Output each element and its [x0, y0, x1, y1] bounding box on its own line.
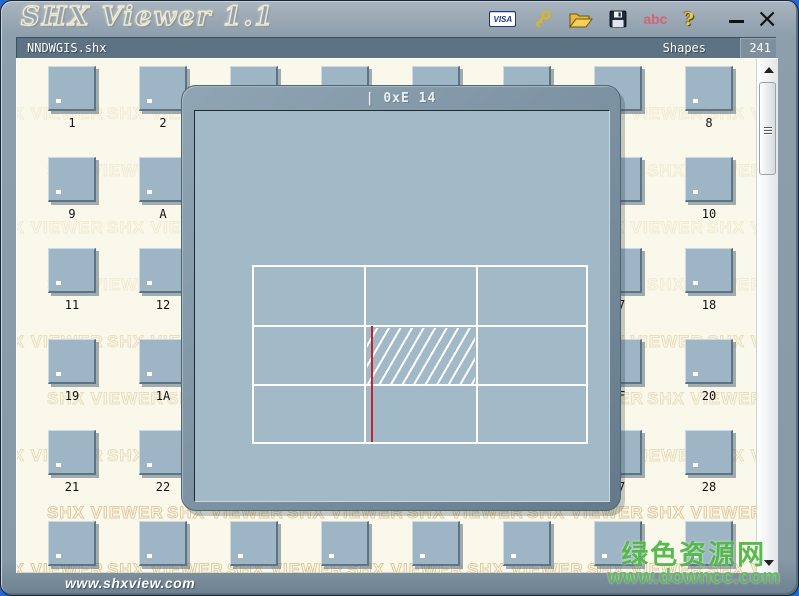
- shape-glyph-icon: [56, 372, 61, 376]
- shape-code-label: 22: [139, 480, 187, 494]
- shape-code-label: 2B: [230, 571, 278, 573]
- shape-thumbnail[interactable]: [48, 157, 96, 202]
- vendor-url: www.shxview.com: [65, 575, 195, 591]
- shape-glyph-icon: [329, 554, 334, 558]
- shape-thumbnail[interactable]: [48, 248, 96, 293]
- shape-code-label: 2F: [594, 571, 642, 573]
- grid-line: [364, 267, 366, 442]
- status-bar: NNDWGIS.shx Shapes 241: [16, 37, 776, 58]
- open-folder-icon[interactable]: [568, 10, 593, 29]
- shape-glyph-icon: [56, 281, 61, 285]
- shape-code-label: 2C: [321, 571, 369, 573]
- shape-thumbnail[interactable]: [48, 66, 96, 111]
- shape-glyph-icon: [693, 554, 698, 558]
- open-filename: NNDWGIS.shx: [27, 41, 106, 55]
- shape-thumbnail[interactable]: [685, 521, 733, 566]
- title-bar[interactable]: SHX Viewer 1.1 VISA abc ?: [1, 1, 798, 37]
- shape-glyph-icon: [693, 190, 698, 194]
- shape-glyph-icon: [56, 463, 61, 467]
- shape-glyph-icon: [693, 372, 698, 376]
- shape-thumbnail[interactable]: [48, 339, 96, 384]
- shape-thumbnail[interactable]: [139, 339, 187, 384]
- shape-code-label: 18: [685, 298, 733, 312]
- shape-glyph-icon: [238, 554, 243, 558]
- grid-line: [476, 267, 478, 442]
- shape-thumbnail[interactable]: [139, 66, 187, 111]
- grid-line: [254, 325, 586, 327]
- shape-code-label: 21: [48, 480, 96, 494]
- scroll-down-button[interactable]: [757, 556, 778, 570]
- scrollbar-thumb[interactable]: [759, 82, 776, 175]
- abc-text-icon[interactable]: abc: [643, 11, 667, 27]
- shape-code-label: 8: [685, 116, 733, 130]
- shape-glyph-icon: [56, 190, 61, 194]
- shx-viewer-watermark: SHX VIEWER: [16, 218, 104, 238]
- shape-count: 241: [740, 38, 776, 59]
- shx-viewer-watermark: SHX VIEWER: [47, 503, 164, 523]
- shape-code-label: 12: [139, 298, 187, 312]
- shape-code-label: 19: [48, 389, 96, 403]
- shape-code-label: 1: [48, 116, 96, 130]
- visa-card-icon[interactable]: VISA: [489, 11, 516, 27]
- up-arrow-icon: [764, 67, 774, 73]
- shape-code-label: 9: [48, 207, 96, 221]
- shape-thumbnail[interactable]: [685, 248, 733, 293]
- shape-glyph-icon: [147, 190, 152, 194]
- shape-glyph-icon: [693, 281, 698, 285]
- shape-thumbnail[interactable]: [48, 521, 96, 566]
- shape-code-label: 2: [139, 116, 187, 130]
- hatched-region: [367, 328, 475, 384]
- app-window: SHX Viewer 1.1 VISA abc ?: [0, 0, 799, 596]
- app-title: SHX Viewer 1.1: [21, 2, 275, 32]
- shape-glyph-icon: [147, 554, 152, 558]
- scrollbar-grip-icon: [764, 127, 772, 136]
- shape-glyph-icon: [693, 99, 698, 103]
- shape-preview-dialog: | 0xE 14: [181, 85, 621, 511]
- key-icon[interactable]: [532, 9, 552, 29]
- help-icon[interactable]: ?: [683, 9, 694, 30]
- vertical-scrollbar[interactable]: [756, 59, 778, 573]
- shape-thumbnail[interactable]: [139, 521, 187, 566]
- shape-code-label: 29: [48, 571, 96, 573]
- shapes-label: Shapes: [663, 41, 706, 55]
- shape-thumbnail[interactable]: [685, 339, 733, 384]
- shape-thumbnail[interactable]: [412, 521, 460, 566]
- shape-thumbnail[interactable]: [48, 430, 96, 475]
- shape-thumbnail[interactable]: [321, 521, 369, 566]
- shape-thumbnail[interactable]: [139, 157, 187, 202]
- shape-thumbnail[interactable]: [503, 521, 551, 566]
- window-buttons: ×: [729, 7, 778, 31]
- shape-code-label: 20: [685, 389, 733, 403]
- shape-code-label: 11: [48, 298, 96, 312]
- shape-glyph-icon: [602, 554, 607, 558]
- toolbar: VISA abc ?: [489, 8, 694, 30]
- shape-thumbnail[interactable]: [139, 430, 187, 475]
- shape-glyph-icon: [693, 463, 698, 467]
- shape-glyph-icon: [147, 99, 152, 103]
- scroll-up-button[interactable]: [757, 63, 778, 77]
- shape-code-label: 1A: [139, 389, 187, 403]
- shape-glyph-icon: [147, 372, 152, 376]
- red-marker-line: [371, 326, 373, 442]
- grid-line: [254, 384, 586, 386]
- shape-thumbnail[interactable]: [230, 521, 278, 566]
- shape-glyph-icon: [147, 281, 152, 285]
- save-icon[interactable]: [609, 10, 627, 28]
- shape-outline-grid: [252, 265, 588, 444]
- minimize-button[interactable]: [729, 7, 744, 31]
- shape-thumbnail[interactable]: [594, 521, 642, 566]
- shape-thumbnail[interactable]: [139, 248, 187, 293]
- down-arrow-icon: [764, 560, 774, 566]
- shape-thumbnail[interactable]: [685, 66, 733, 111]
- shape-code-label: 30: [685, 571, 733, 573]
- dialog-title[interactable]: | 0xE 14: [182, 91, 620, 106]
- shape-code-label: 10: [685, 207, 733, 221]
- shape-canvas: [194, 110, 610, 502]
- close-button[interactable]: ×: [756, 8, 778, 30]
- shape-thumbnail[interactable]: [685, 157, 733, 202]
- shape-glyph-icon: [56, 554, 61, 558]
- shape-glyph-icon: [147, 463, 152, 467]
- shape-glyph-icon: [511, 554, 516, 558]
- shape-code-label: A: [139, 207, 187, 221]
- shape-glyph-icon: [56, 99, 61, 103]
- shape-code-label: 2D: [412, 571, 460, 573]
- shape-code-label: 2A: [139, 571, 187, 573]
- shape-code-label: 28: [685, 480, 733, 494]
- shape-glyph-icon: [420, 554, 425, 558]
- shape-code-label: 2E: [503, 571, 551, 573]
- shape-thumbnail[interactable]: [685, 430, 733, 475]
- shx-viewer-watermark: SHX VIEWER: [647, 503, 764, 523]
